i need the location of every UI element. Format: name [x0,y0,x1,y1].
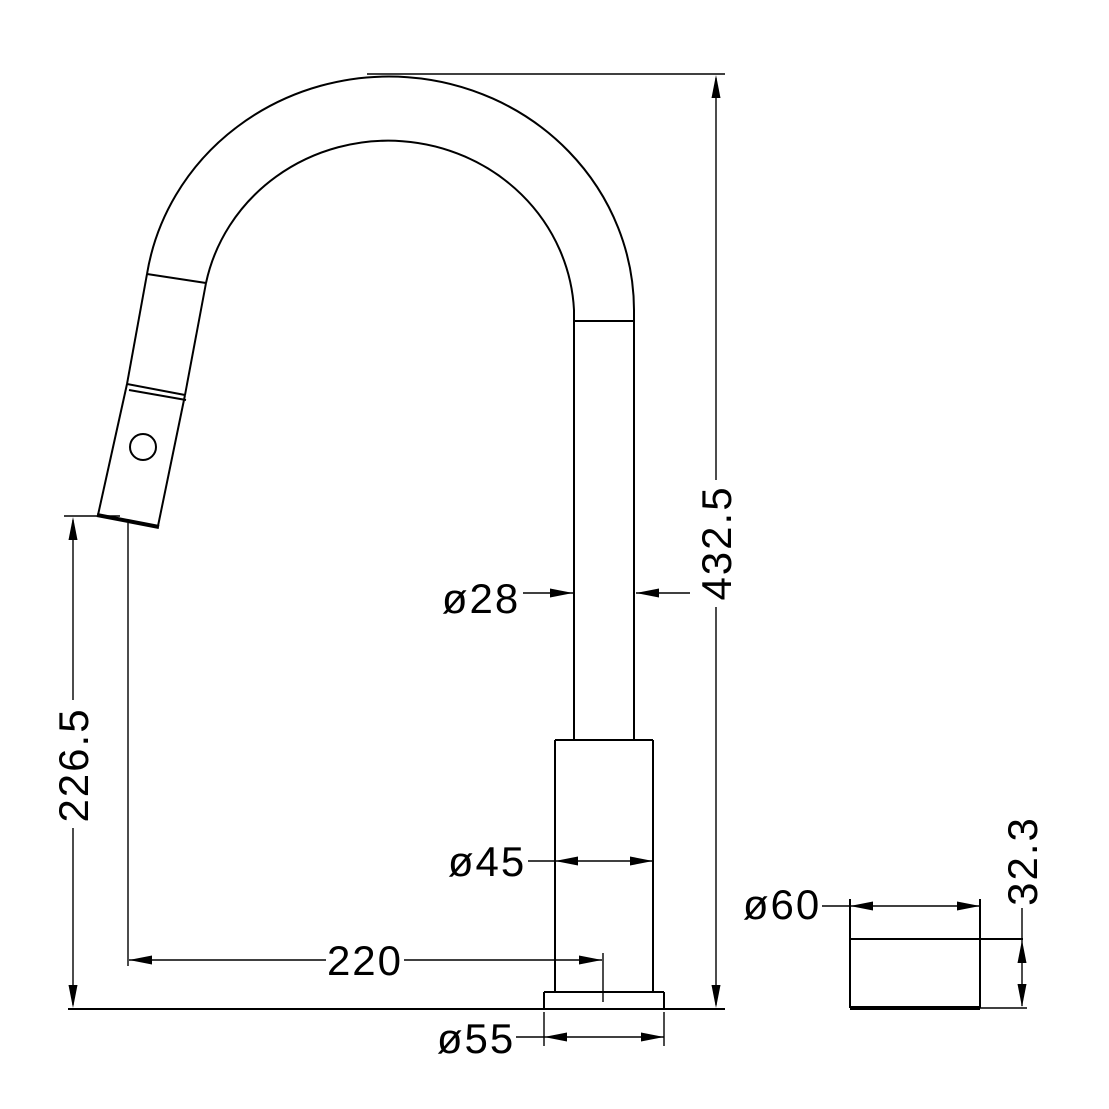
spout-outer-arc [147,77,634,310]
dimension-overall-height: 432.5 [367,74,740,1008]
dim-overall-height-label: 432.5 [693,485,740,600]
dimension-cover-plate-height: 32.3 [999,816,1046,1007]
spout-upper-joint-line [147,274,206,283]
spray-head-left-edge [98,384,127,515]
dimension-body-diameter: ø45 [448,838,653,885]
dim-reach-label: 220 [327,937,403,984]
spray-head-right-edge [158,395,185,526]
base-flange [544,992,664,1009]
dim-base-diameter-label: ø55 [437,1015,515,1062]
arrowhead-down-icon [712,985,721,1008]
dimension-spout-tube-diameter: ø28 [442,575,690,622]
faucet-dimension-drawing: 432.5 226.5 ø28 ø45 220 [0,0,1109,1109]
arrowhead-left-icon [555,857,578,866]
spray-button-circle [130,434,156,460]
arrowhead-right-icon [579,956,602,965]
arrowhead-up-icon [1018,940,1027,963]
arrowhead-right-icon [957,902,980,911]
arrowhead-down-icon [1018,984,1027,1007]
spout-angled-left-edge [127,274,147,384]
arrowhead-up-icon [712,75,721,98]
gooseneck-spout [127,77,634,740]
spout-inner-arc [206,141,574,310]
cover-plate-side-view [850,899,1027,1008]
dimension-spout-outlet-height: 226.5 [50,516,120,1008]
arrowhead-up-icon [69,517,78,540]
arrowhead-right-icon [641,1033,664,1042]
dimension-spout-reach: 220 [128,523,603,1002]
spray-head-seam-line-1 [127,384,185,395]
arrowhead-right-icon [630,857,653,866]
arrowhead-down-icon [69,985,78,1008]
dim-outlet-height-label: 226.5 [50,707,97,822]
dim-cover-diameter-label: ø60 [743,881,821,928]
arrowhead-left-icon [636,589,659,598]
arrowhead-left-icon [129,956,152,965]
faucet-outline [68,77,725,1009]
dimension-cover-plate-diameter: ø60 [743,881,980,928]
dimension-base-diameter: ø55 [437,1012,664,1062]
technical-drawing-canvas: 432.5 226.5 ø28 ø45 220 [0,0,1109,1109]
dim-body-diameter-label: ø45 [448,838,526,885]
arrowhead-left-icon [544,1033,567,1042]
arrowhead-right-icon [550,589,573,598]
pullout-spray-head [97,384,186,527]
dim-tube-diameter-label: ø28 [442,575,520,622]
dim-cover-height-label: 32.3 [999,816,1046,906]
spray-head-seam-line-2 [129,390,186,400]
spout-angled-right-edge [185,283,206,395]
arrowhead-left-icon [850,902,873,911]
faucet-body [555,740,653,992]
